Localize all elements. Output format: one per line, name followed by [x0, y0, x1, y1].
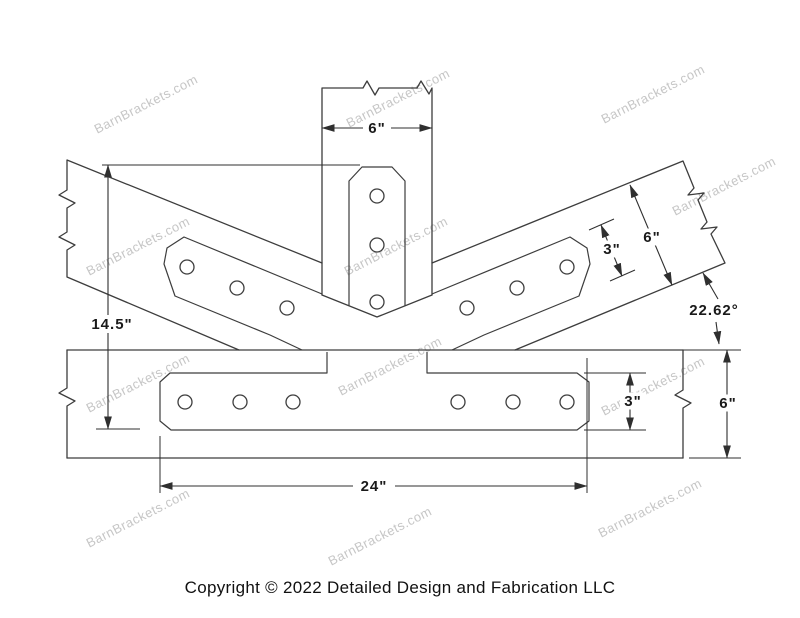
brace-plate-width-label: 3" [603, 241, 620, 258]
bolt-hole [178, 395, 192, 409]
bolt-hole [180, 260, 194, 274]
fan-bracket-drawing-page: BarnBrackets.comBarnBrackets.comBarnBrac… [0, 0, 800, 618]
watermark-text: BarnBrackets.com [596, 475, 705, 540]
watermark-text: BarnBrackets.com [84, 213, 193, 278]
watermark-text: BarnBrackets.com [342, 213, 451, 278]
angle-leader-lower [716, 322, 719, 344]
brace-plate-upper-extension [589, 219, 614, 230]
overall-height-label: 14.5" [91, 316, 132, 333]
watermark-text: BarnBrackets.com [84, 485, 193, 550]
bolt-hole [370, 238, 384, 252]
bolt-hole [560, 395, 574, 409]
watermark-text: BarnBrackets.com [92, 71, 201, 136]
bolt-hole [370, 295, 384, 309]
bolt-hole [233, 395, 247, 409]
watermark-text: BarnBrackets.com [599, 353, 708, 418]
bolt-hole [451, 395, 465, 409]
bolt-hole [280, 301, 294, 315]
watermark-text: BarnBrackets.com [326, 503, 435, 568]
copyright-text: Copyright © 2022 Detailed Design and Fab… [0, 578, 800, 598]
angle-leader-upper [703, 273, 718, 299]
watermark-text: BarnBrackets.com [336, 333, 445, 398]
beam-plate-length-label: 24" [361, 478, 388, 495]
bolt-hole [506, 395, 520, 409]
watermark-text: BarnBrackets.com [84, 350, 193, 415]
bracket-drawing: BarnBrackets.comBarnBrackets.comBarnBrac… [0, 0, 800, 618]
brace-width-label: 6" [643, 229, 660, 246]
brace-plate-lower-extension [610, 270, 635, 281]
watermark-text: BarnBrackets.com [670, 153, 779, 218]
beam-plate [160, 352, 589, 430]
post-width-label: 6" [368, 120, 385, 137]
bolt-hole [460, 301, 474, 315]
beam-left-break [59, 350, 75, 458]
beam-width-label: 6" [719, 395, 736, 412]
bolt-hole [230, 281, 244, 295]
bolt-hole [510, 281, 524, 295]
watermark-text: BarnBrackets.com [344, 65, 453, 130]
right-brace-outline [432, 161, 725, 350]
brace-angle-label: 22.62° [689, 302, 739, 319]
bolt-hole [286, 395, 300, 409]
bolt-hole [370, 189, 384, 203]
dimension-lines [96, 128, 741, 493]
bolt-hole [560, 260, 574, 274]
watermark-layer: BarnBrackets.comBarnBrackets.comBarnBrac… [84, 61, 779, 568]
beam-plate-width-label: 3" [624, 393, 641, 410]
watermark-text: BarnBrackets.com [599, 61, 708, 126]
